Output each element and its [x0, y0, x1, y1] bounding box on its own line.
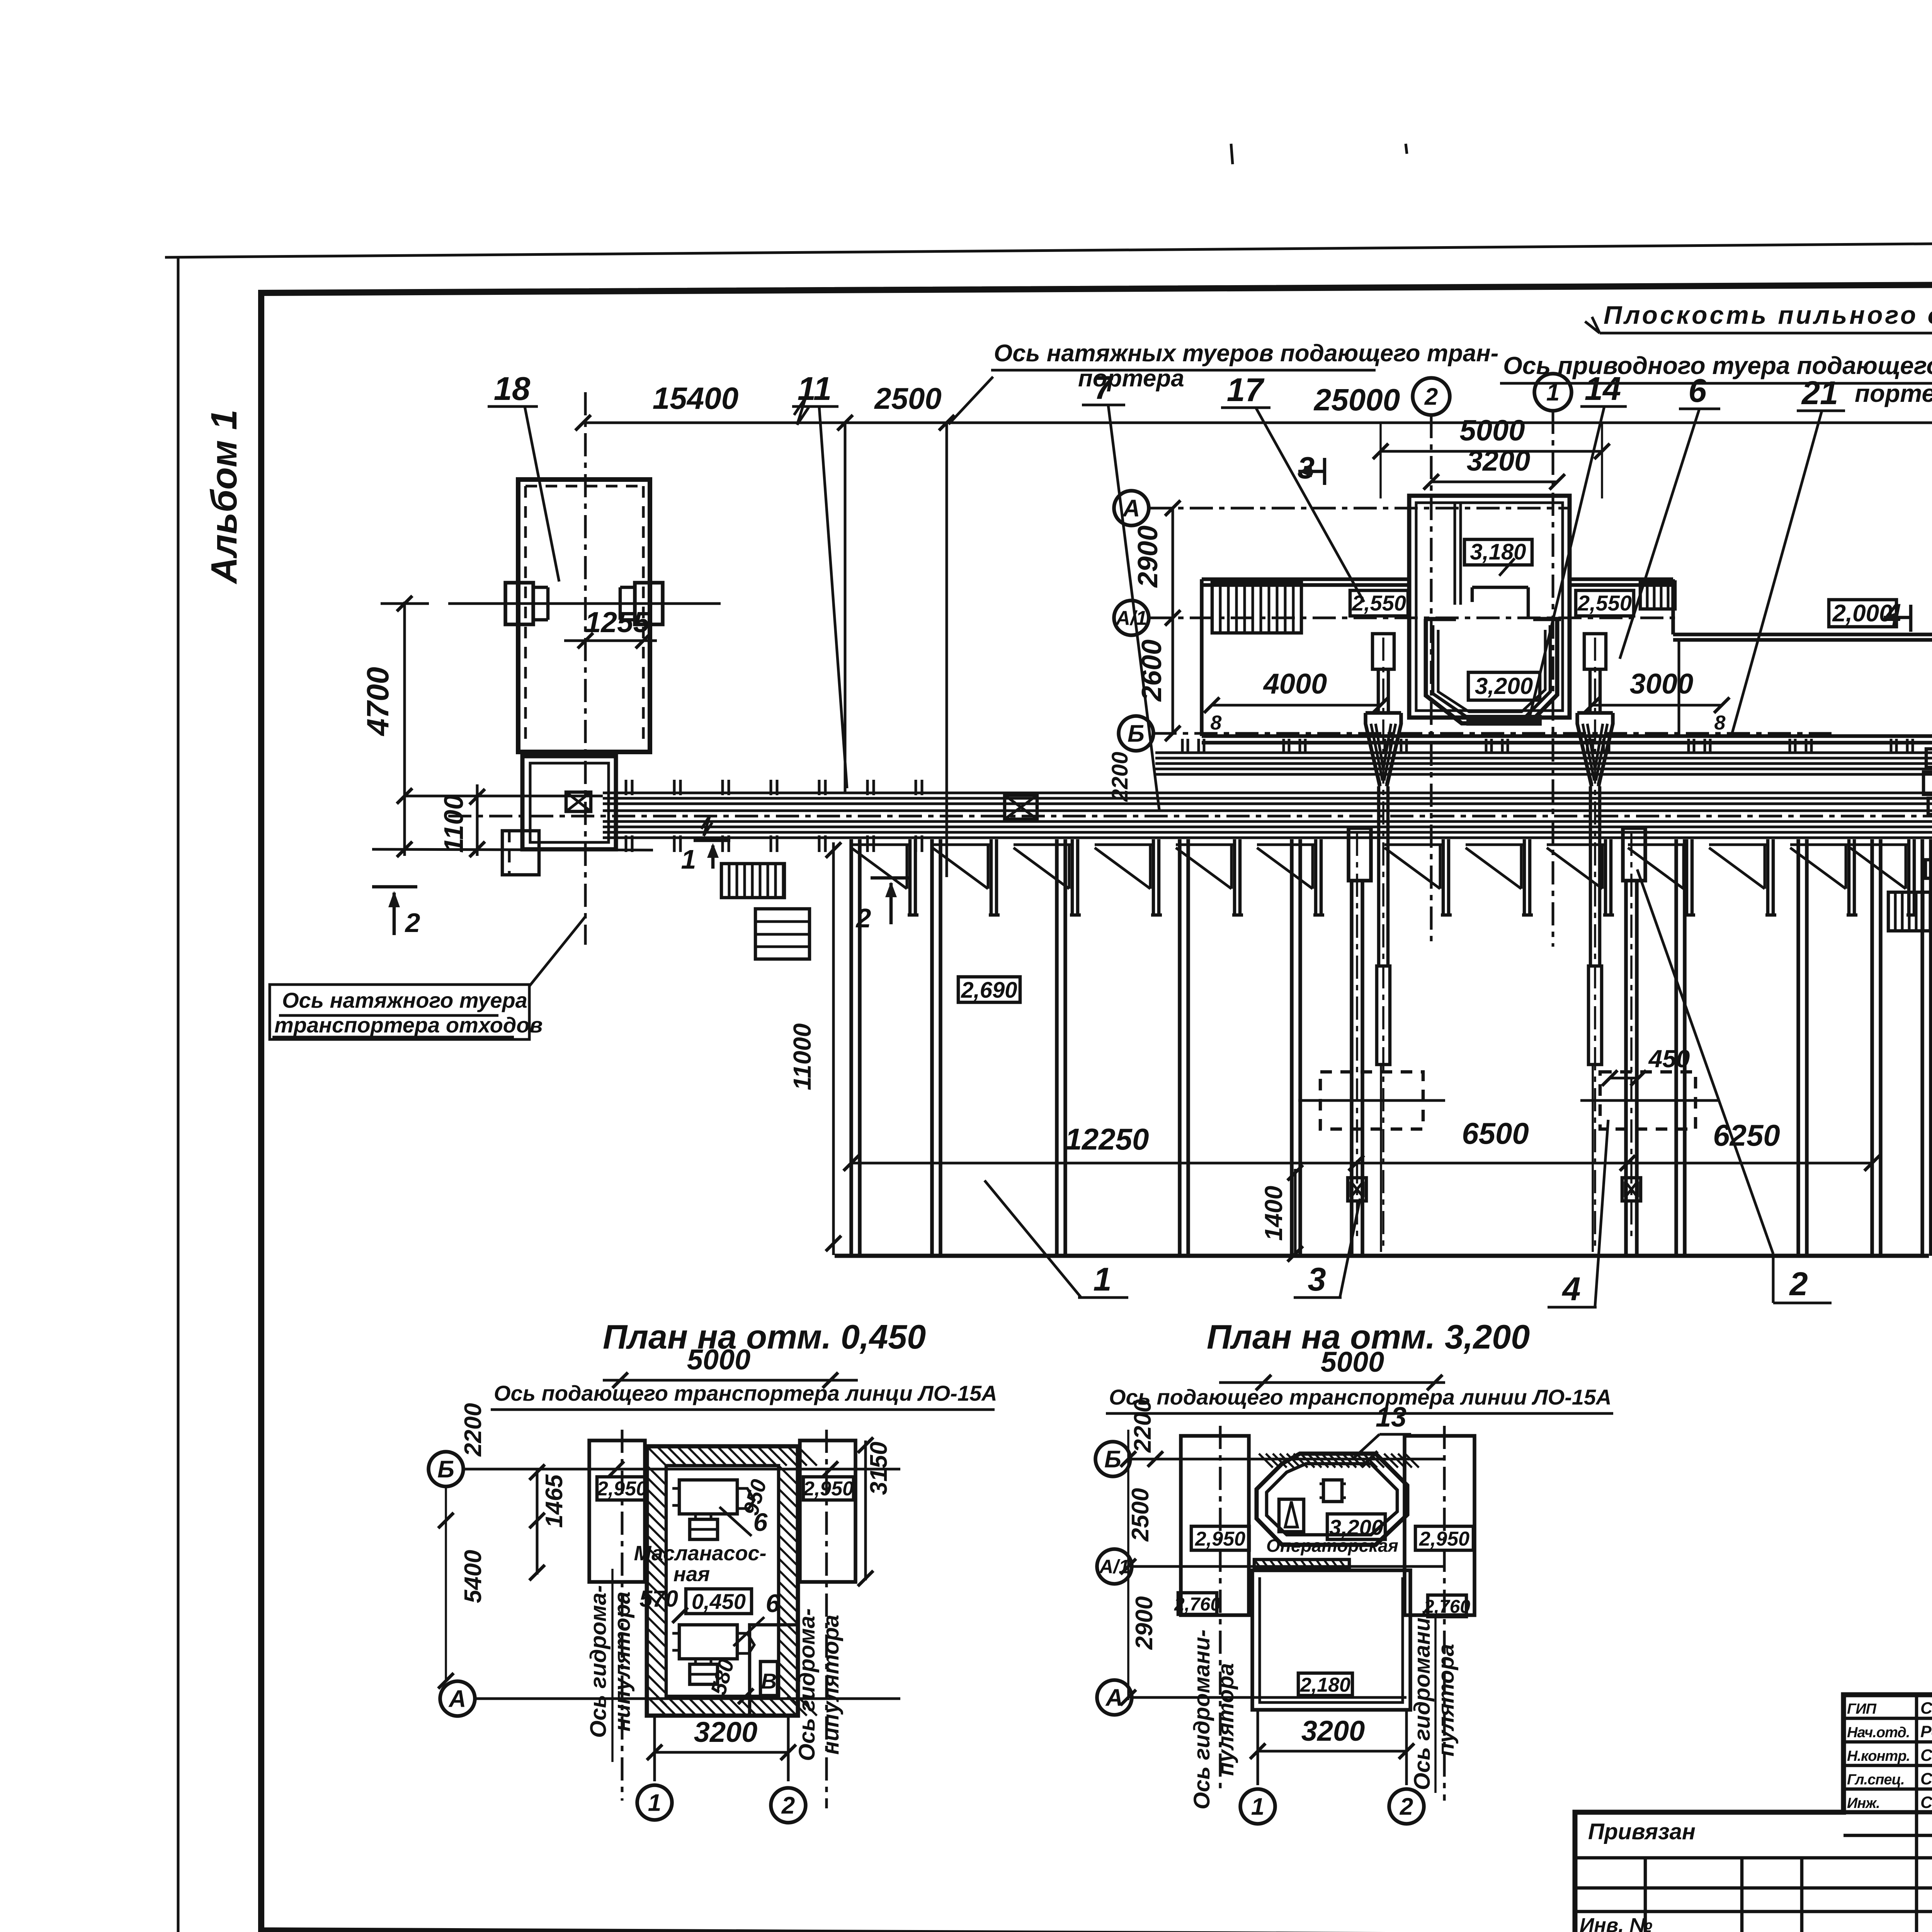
svg-text:пулятора: пулятора [1213, 1663, 1238, 1776]
svg-text:Ось натяжных туеров подающего: Ось натяжных туеров подающего тран- [994, 340, 1498, 367]
svg-text:Ось приводного туера подающего: Ось приводного туера подающего транс- [1503, 352, 1932, 379]
svg-text:17: 17 [1227, 372, 1265, 408]
svg-text:2600: 2600 [1136, 639, 1167, 702]
svg-text:8: 8 [1714, 712, 1726, 734]
svg-text:А: А [1105, 1685, 1123, 1711]
svg-text:6500: 6500 [1462, 1116, 1529, 1150]
svg-text:Сергеева: Сергеева [1920, 1746, 1932, 1765]
svg-text:1255: 1255 [585, 606, 650, 638]
svg-text:Ось подающего транспортера: Ось подающего транспортера линци ЛО-15А [494, 1381, 997, 1405]
svg-text:Операторская: Операторская [1266, 1536, 1398, 1556]
svg-text:6250: 6250 [1713, 1118, 1780, 1152]
svg-text:25000: 25000 [1313, 383, 1400, 417]
svg-text:2: 2 [1400, 1794, 1413, 1820]
svg-text:0,450: 0,450 [692, 1589, 746, 1614]
svg-text:Ось гидромани-: Ось гидромани- [1189, 1629, 1214, 1810]
svg-text:2,950: 2,950 [597, 1478, 647, 1500]
svg-text:5400: 5400 [460, 1550, 486, 1603]
svg-text:3,200: 3,200 [1475, 673, 1533, 699]
svg-text:Сергеева: Сергеева [1920, 1699, 1932, 1718]
svg-text:пулятора: пулятора [1434, 1644, 1459, 1757]
svg-text:2: 2 [405, 908, 420, 938]
svg-text:2900: 2900 [1131, 1596, 1158, 1650]
svg-text:2,690: 2,690 [961, 978, 1017, 1003]
svg-text:портера: портера [1855, 379, 1932, 407]
svg-text:3200: 3200 [1301, 1715, 1365, 1747]
svg-text:1465: 1465 [541, 1474, 568, 1528]
svg-text:11000: 11000 [788, 1023, 816, 1090]
svg-text:Б: Б [1128, 721, 1145, 747]
svg-text:ГИП: ГИП [1847, 1701, 1877, 1717]
svg-text:Рогачев: Рогачев [1920, 1723, 1932, 1741]
svg-text:Инж.: Инж. [1847, 1795, 1880, 1811]
svg-text:12250: 12250 [1065, 1122, 1149, 1156]
svg-text:ная: ная [673, 1563, 710, 1586]
svg-text:Нач.отд.: Нач.отд. [1847, 1725, 1910, 1741]
svg-text:6: 6 [766, 1589, 781, 1617]
svg-text:8: 8 [1211, 712, 1222, 734]
svg-text:2,180: 2,180 [1300, 1674, 1350, 1696]
svg-text:2,000: 2,000 [1832, 600, 1892, 627]
svg-text:2,950: 2,950 [803, 1478, 854, 1500]
svg-text:3,180: 3,180 [1470, 539, 1526, 565]
svg-text:Ось натяжного туера: Ось натяжного туера [282, 988, 527, 1012]
svg-text:450: 450 [1648, 1045, 1690, 1073]
svg-text:4: 4 [1561, 1271, 1580, 1308]
svg-text:2,760: 2,760 [1174, 1594, 1221, 1615]
svg-text:2200: 2200 [1107, 752, 1133, 802]
svg-text:2200: 2200 [1129, 1399, 1156, 1453]
svg-text:Плоскость пильного диска: Плоскость пильного диска [1604, 301, 1932, 329]
svg-text:Альбом 1: Альбом 1 [204, 410, 245, 584]
svg-text:Ось гидрома-: Ось гидрома- [586, 1585, 611, 1738]
svg-text:3: 3 [1298, 451, 1315, 485]
svg-text:2500: 2500 [1127, 1488, 1154, 1542]
svg-text:План на отм. 0,450: План на отм. 0,450 [603, 1318, 926, 1356]
svg-text:2,950: 2,950 [1195, 1528, 1245, 1550]
svg-text:2900: 2900 [1133, 526, 1163, 588]
svg-text:11: 11 [798, 371, 832, 407]
svg-text:3200: 3200 [694, 1716, 758, 1748]
svg-text:3: 3 [1308, 1261, 1326, 1298]
svg-text:Смирнова: Смирнова [1920, 1793, 1932, 1812]
svg-text:2: 2 [855, 903, 871, 933]
svg-text:4000: 4000 [1263, 668, 1327, 700]
svg-text:А: А [448, 1686, 466, 1713]
svg-text:Б: Б [437, 1456, 454, 1483]
svg-text:1: 1 [648, 1790, 661, 1816]
svg-text:2: 2 [1789, 1266, 1808, 1303]
svg-text:Н.контр.: Н.контр. [1847, 1748, 1910, 1764]
svg-text:В: В [761, 1669, 777, 1693]
svg-text:15400: 15400 [653, 381, 738, 415]
svg-text:1100: 1100 [439, 795, 469, 853]
svg-text:3200: 3200 [1467, 445, 1531, 477]
svg-text:1400: 1400 [1260, 1186, 1287, 1241]
svg-text:2,950: 2,950 [1419, 1528, 1469, 1550]
svg-text:нипулятора: нипулятора [818, 1615, 844, 1755]
svg-text:Ось гидромани-: Ось гидромани- [1410, 1610, 1435, 1790]
svg-text:2,550: 2,550 [1352, 591, 1406, 615]
svg-text:2: 2 [1424, 384, 1438, 410]
svg-text:2: 2 [781, 1793, 795, 1819]
svg-text:1: 1 [1093, 1261, 1111, 1298]
svg-text:5000: 5000 [687, 1344, 751, 1376]
svg-text:транспортера отходов: транспортера отходов [274, 1013, 543, 1037]
svg-text:Сергеева: Сергеева [1920, 1770, 1932, 1788]
svg-text:13: 13 [1376, 1402, 1406, 1433]
svg-text:А/1: А/1 [1115, 607, 1147, 629]
svg-text:21: 21 [1801, 375, 1838, 412]
svg-text:5000: 5000 [1321, 1346, 1384, 1378]
svg-text:3150: 3150 [866, 1442, 892, 1495]
svg-text:портера: портера [1078, 365, 1184, 392]
svg-text:18: 18 [494, 371, 531, 407]
svg-text:Масланасос-: Масланасос- [634, 1542, 766, 1565]
svg-text:6: 6 [753, 1508, 768, 1536]
svg-text:2,550: 2,550 [1577, 591, 1632, 615]
svg-text:570: 570 [639, 1586, 678, 1612]
svg-text:А/1: А/1 [1099, 1556, 1129, 1578]
svg-text:А: А [1122, 495, 1140, 522]
svg-text:Инв. №: Инв. № [1580, 1914, 1653, 1932]
svg-text:Привязан: Привязан [1588, 1819, 1696, 1844]
svg-text:Ось подающего транспортера: Ось подающего транспортера линии ЛО-15А [1109, 1385, 1612, 1409]
svg-text:1: 1 [681, 844, 696, 874]
svg-text:1: 1 [1251, 1794, 1264, 1820]
svg-text:Гл.спец.: Гл.спец. [1847, 1772, 1905, 1788]
svg-text:1: 1 [1546, 379, 1560, 406]
svg-text:4700: 4700 [361, 667, 395, 736]
svg-text:2500: 2500 [874, 381, 942, 415]
svg-text:5000: 5000 [1459, 414, 1525, 447]
svg-text:Ось гидрома-: Ось гидрома- [794, 1608, 820, 1761]
svg-text:2200: 2200 [460, 1403, 486, 1457]
svg-text:Б: Б [1104, 1446, 1121, 1473]
svg-text:3000: 3000 [1630, 668, 1694, 700]
